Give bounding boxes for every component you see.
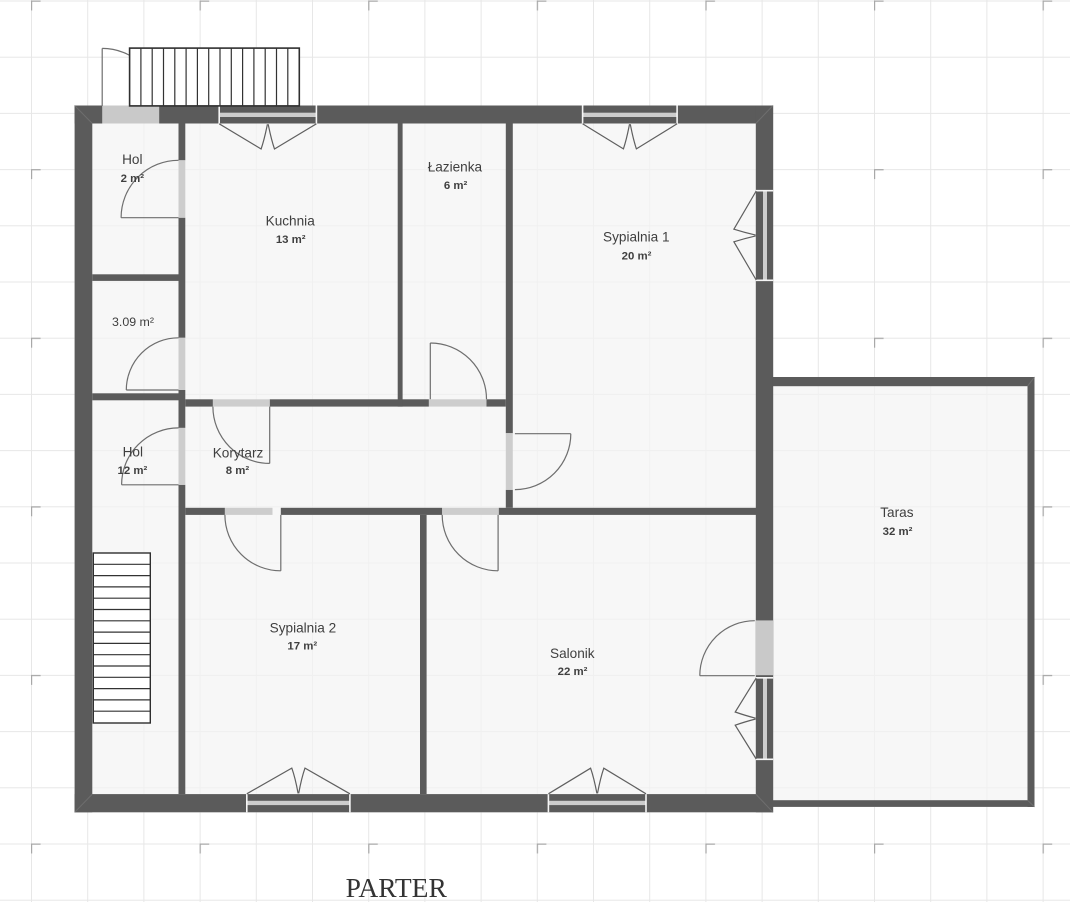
svg-text:13 m²: 13 m²	[276, 234, 306, 246]
svg-text:Salonik: Salonik	[550, 646, 595, 661]
svg-text:12 m²: 12 m²	[118, 465, 148, 477]
svg-text:PARTER: PARTER	[346, 872, 448, 902]
svg-text:Kuchnia: Kuchnia	[266, 214, 316, 229]
svg-text:Sypialnia 1: Sypialnia 1	[603, 230, 670, 245]
svg-text:32 m²: 32 m²	[883, 526, 913, 538]
svg-text:Hol: Hol	[122, 152, 142, 167]
svg-text:6 m²: 6 m²	[444, 180, 468, 192]
svg-text:17 m²: 17 m²	[287, 641, 317, 653]
svg-text:3.09 m²: 3.09 m²	[112, 315, 154, 329]
svg-text:8 m²: 8 m²	[226, 465, 250, 477]
svg-text:Taras: Taras	[880, 505, 913, 520]
svg-text:Korytarz: Korytarz	[213, 445, 264, 460]
svg-text:Hol: Hol	[123, 445, 143, 460]
svg-text:2 m²: 2 m²	[121, 173, 145, 185]
svg-text:Łazienka: Łazienka	[428, 160, 483, 175]
svg-text:20 m²: 20 m²	[622, 251, 652, 263]
svg-text:22 m²: 22 m²	[558, 666, 588, 678]
svg-text:Sypialnia 2: Sypialnia 2	[270, 620, 337, 635]
